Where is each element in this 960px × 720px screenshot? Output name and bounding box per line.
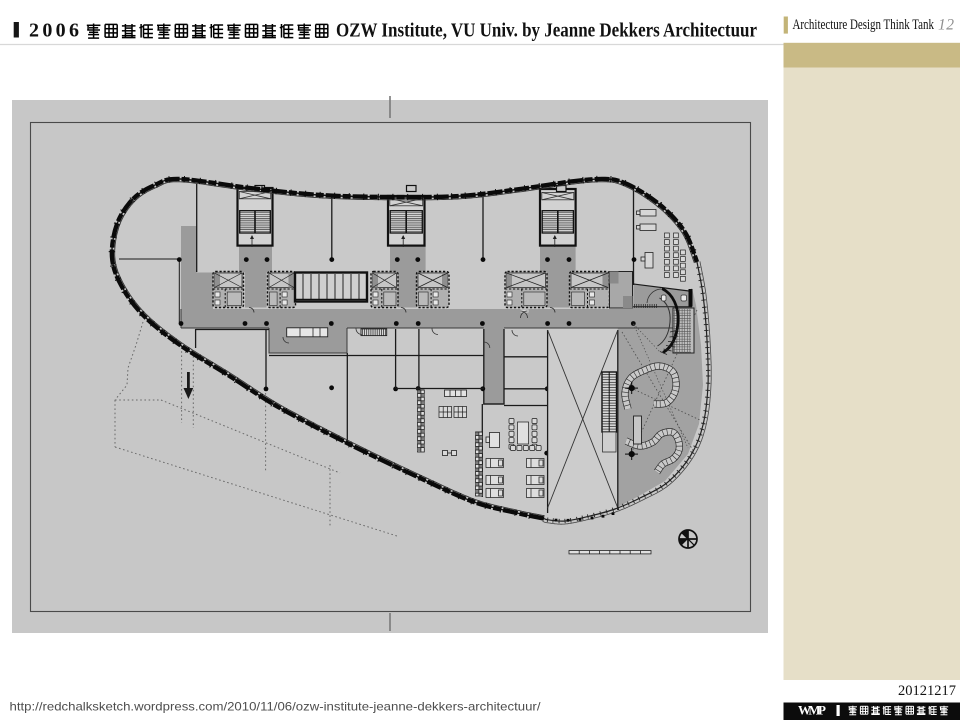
svg-text:http://redchalksketch.wordpres: http://redchalksketch.wordpress.com/2010… (10, 700, 542, 714)
svg-text:WMP: WMP (798, 703, 826, 718)
svg-text:OZW Institute, VU Univ. by Jea: OZW Institute, VU Univ. by Jeanne Dekker… (336, 20, 757, 42)
svg-text:Architecture Design Think Tank: Architecture Design Think Tank (793, 17, 935, 33)
svg-text:12: 12 (938, 17, 954, 34)
svg-text:20121217: 20121217 (898, 683, 956, 699)
